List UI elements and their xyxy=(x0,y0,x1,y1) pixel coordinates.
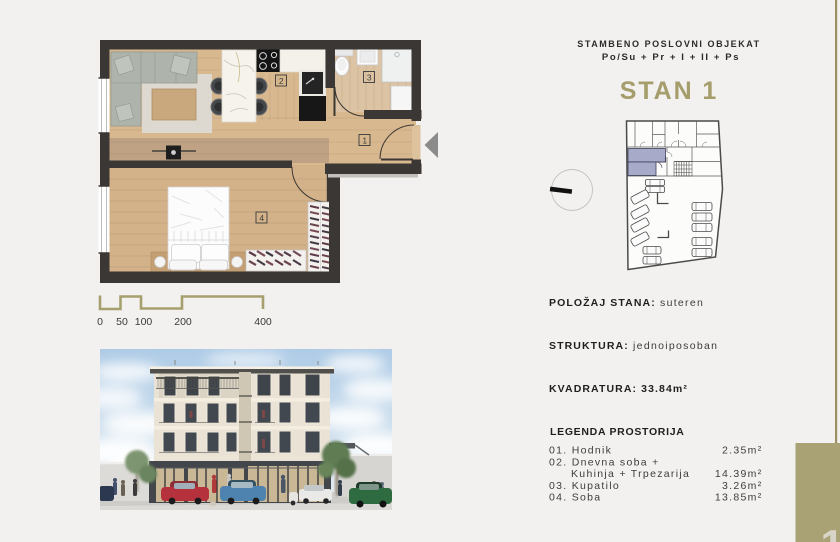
svg-text:03. Kupatilo: 03. Kupatilo xyxy=(549,480,620,492)
svg-text:50: 50 xyxy=(116,316,128,328)
svg-text:1: 1 xyxy=(821,521,840,542)
svg-text:LEGENDA PROSTORIJA: LEGENDA PROSTORIJA xyxy=(550,426,685,438)
svg-text:4: 4 xyxy=(259,213,264,223)
svg-text:POLOŽAJ STANA: suteren: POLOŽAJ STANA: suteren xyxy=(549,296,704,309)
svg-text:2.35m²: 2.35m² xyxy=(722,445,762,457)
svg-text:Kuhinja + Trpezarija: Kuhinja + Trpezarija xyxy=(571,468,690,480)
svg-text:200: 200 xyxy=(174,316,192,328)
svg-text:400: 400 xyxy=(254,316,272,328)
svg-text:1: 1 xyxy=(362,135,367,145)
svg-text:100: 100 xyxy=(135,316,153,328)
svg-text:KVADRATURA: 33.84m²: KVADRATURA: 33.84m² xyxy=(549,383,688,395)
svg-text:3.26m²: 3.26m² xyxy=(722,480,762,492)
svg-text:Po/Su + Pr + I + II + Ps: Po/Su + Pr + I + II + Ps xyxy=(602,52,740,63)
svg-text:02. Dnevna soba +: 02. Dnevna soba + xyxy=(549,456,660,468)
svg-text:3: 3 xyxy=(367,72,372,82)
svg-text:STAN 1: STAN 1 xyxy=(620,77,718,105)
svg-text:2: 2 xyxy=(279,76,284,86)
svg-text:01. Hodnik: 01. Hodnik xyxy=(549,445,612,457)
svg-text:14.39m²: 14.39m² xyxy=(715,468,763,480)
svg-text:13.85m²: 13.85m² xyxy=(715,492,763,504)
svg-text:04. Soba: 04. Soba xyxy=(549,492,601,504)
svg-text:0: 0 xyxy=(97,316,103,328)
svg-text:STRUKTURA: jednoiposoban: STRUKTURA: jednoiposoban xyxy=(549,340,718,352)
svg-text:STAMBENO POSLOVNI OBJEKAT: STAMBENO POSLOVNI OBJEKAT xyxy=(577,39,760,49)
